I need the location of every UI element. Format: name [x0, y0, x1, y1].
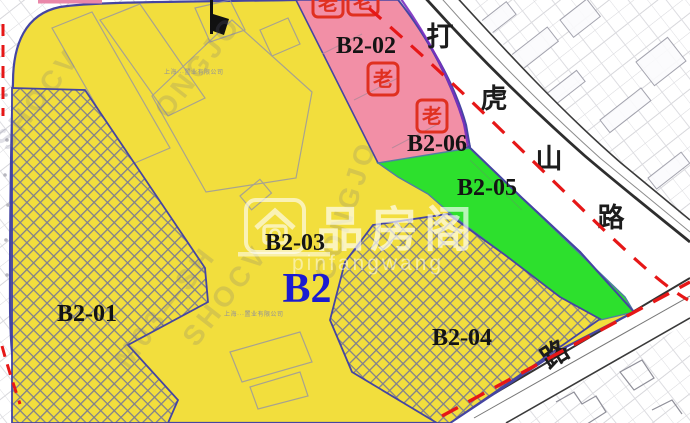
road-name-char-1: 打	[427, 22, 454, 52]
zoning-planning-map: ONGJO M03—SH CONGJO SHOCV SHOCV 品房阁 pinf…	[0, 0, 690, 423]
parcel-label-b2-01: B2-01	[57, 301, 117, 327]
historic-marker-glyph: 老	[422, 104, 442, 128]
tiny-company-label-1: 上海···置业有限公司	[164, 68, 224, 76]
map-canvas: ONGJO M03—SH CONGJO SHOCV SHOCV 品房阁 pinf…	[0, 0, 690, 423]
parcel-label-b2-03: B2-03	[265, 230, 325, 256]
historic-marker-glyph: 老	[318, 0, 338, 15]
parcel-label-b2-05: B2-05	[457, 175, 517, 201]
historic-marker-glyph: 老	[373, 67, 393, 91]
parcel-label-b2-04: B2-04	[432, 325, 492, 351]
road-name-char-2: 虎	[481, 84, 508, 114]
block-label-b2: B2	[282, 266, 331, 312]
logo-text-cn: 品房阁	[316, 204, 478, 257]
parcel-label-b2-02: B2-02	[336, 33, 396, 59]
top-edge-pink-sliver	[38, 0, 102, 4]
tiny-company-label-2: 上海···置业有限公司	[224, 310, 284, 318]
parcel-label-b2-06: B2-06	[407, 131, 467, 157]
